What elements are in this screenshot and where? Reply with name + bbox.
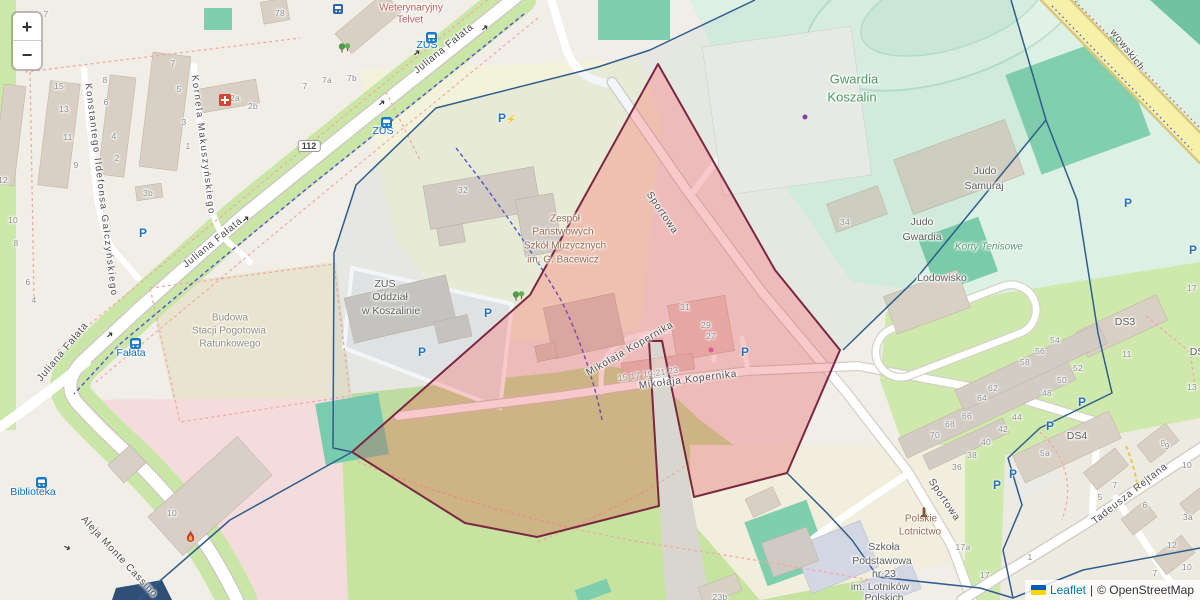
zoom-out-button[interactable]: − (13, 41, 41, 69)
zoom-control: + − (13, 13, 41, 69)
attribution-separator: | (1090, 580, 1093, 600)
map-base-layers (0, 0, 1200, 600)
osm-link[interactable]: © OpenStreetMap (1097, 580, 1194, 600)
ukraine-flag-icon (1031, 585, 1046, 595)
zoom-in-button[interactable]: + (13, 13, 41, 41)
attribution-bar: Leaflet | © OpenStreetMap (1025, 580, 1200, 600)
leaflet-link[interactable]: Leaflet (1050, 580, 1086, 600)
map-canvas[interactable]: Juliana FałataJuliana FałataJuliana Fała… (0, 0, 1200, 600)
